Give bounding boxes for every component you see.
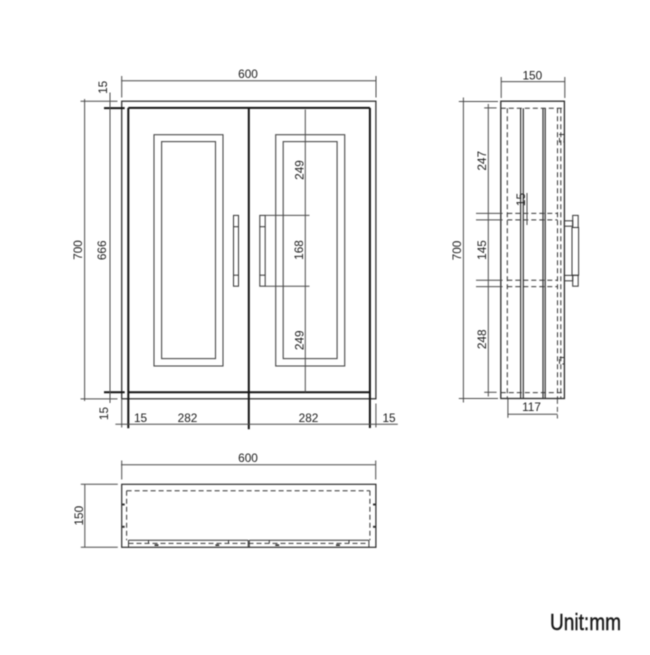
svg-text:145: 145 <box>475 240 489 260</box>
svg-text:150: 150 <box>72 505 86 525</box>
svg-text:247: 247 <box>475 151 489 171</box>
svg-text:700: 700 <box>450 240 464 260</box>
svg-text:15: 15 <box>514 193 528 207</box>
svg-text:150: 150 <box>522 69 542 83</box>
svg-text:15: 15 <box>134 411 148 425</box>
svg-text:Unit:mm: Unit:mm <box>550 609 621 635</box>
svg-text:600: 600 <box>238 67 258 81</box>
svg-text:666: 666 <box>95 240 109 260</box>
svg-text:600: 600 <box>238 451 258 465</box>
svg-text:168: 168 <box>292 240 306 260</box>
svg-text:248: 248 <box>475 329 489 349</box>
svg-text:15: 15 <box>382 411 396 425</box>
svg-text:15: 15 <box>96 80 110 94</box>
svg-text:117: 117 <box>522 400 541 414</box>
svg-text:282: 282 <box>299 411 319 425</box>
svg-text:249: 249 <box>293 330 307 350</box>
svg-text:282: 282 <box>178 411 198 425</box>
svg-text:700: 700 <box>71 240 85 260</box>
svg-text:15: 15 <box>97 407 111 421</box>
svg-text:249: 249 <box>293 160 307 180</box>
